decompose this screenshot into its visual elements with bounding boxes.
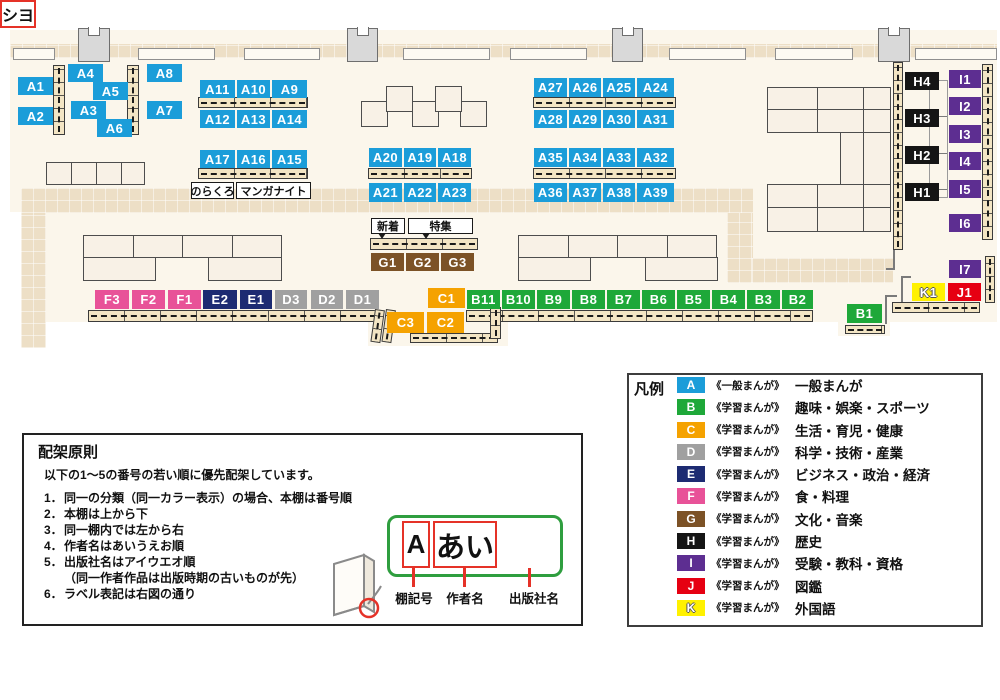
legend-scope: 《学習まんが》 — [711, 444, 795, 459]
legend-title: 凡例 — [634, 378, 664, 399]
wall-segment — [510, 48, 587, 60]
shelf-label-A24: A24 — [637, 78, 674, 97]
reading-table — [83, 257, 156, 281]
legend-badge-H: H — [677, 533, 705, 549]
pillar — [347, 28, 378, 62]
shelf-label-A10: A10 — [237, 80, 270, 98]
legend-item-F: F《学習まんが》食・料理 — [677, 488, 977, 504]
principle-text: 出版社名はアイウエオ順 — [64, 553, 195, 570]
reading-table — [840, 132, 864, 185]
bookshelf — [370, 238, 478, 250]
shelf-label-A36: A36 — [534, 183, 567, 202]
reading-table — [863, 87, 891, 110]
shelf-label-A5: A5 — [93, 82, 128, 100]
shelf-label-G1: G1 — [371, 253, 404, 271]
reading-table — [46, 162, 72, 185]
reading-table — [645, 257, 718, 281]
legend-badge-F: F — [677, 488, 705, 504]
reading-table — [863, 132, 891, 185]
legend-badge-B: B — [677, 399, 705, 415]
shelf-label-C1: C1 — [428, 288, 465, 308]
shelf-label-A28: A28 — [534, 110, 567, 128]
reading-table — [817, 184, 864, 208]
principle-item: 2．本棚は上から下 — [44, 505, 148, 522]
floor-map: A1A2A4A5A3A6A8A7A11A10A9A12A13A14A17A16A… — [0, 0, 1000, 360]
principle-item: 5．出版社名はアイウエオ順 — [44, 553, 195, 570]
bookshelf — [533, 168, 676, 179]
wall-segment — [138, 48, 215, 60]
bookshelf — [985, 256, 995, 303]
shelf-label-A17: A17 — [200, 150, 235, 168]
shelf-label-E2: E2 — [203, 290, 237, 309]
shelf-label-F3: F3 — [95, 290, 129, 309]
pointer-line — [463, 568, 466, 587]
shelf-label-I4: I4 — [949, 152, 981, 170]
legend-item-J: J《学習まんが》図鑑 — [677, 578, 977, 594]
map-callout: のらくろ — [191, 182, 234, 199]
legend-item-G: G《学習まんが》文化・音楽 — [677, 511, 977, 527]
shelf-label-A37: A37 — [569, 183, 601, 202]
shelf-label-B6: B6 — [642, 290, 675, 309]
reading-table — [182, 235, 233, 258]
principle-item: 1．同一の分類（同一カラー表示）の場合、本棚は番号順 — [44, 489, 352, 506]
shelf-unit-frame — [929, 80, 948, 198]
reading-table — [767, 207, 818, 232]
bookshelf — [198, 97, 308, 108]
legend-badge-J: J — [677, 578, 705, 594]
bookshelf — [368, 168, 472, 179]
shelf-label-I7: I7 — [949, 260, 981, 278]
shelf-label-G2: G2 — [406, 253, 439, 271]
legend-item-H: H《学習まんが》歴史 — [677, 533, 977, 549]
bookshelf — [982, 64, 993, 240]
reading-table — [667, 235, 717, 258]
legend-category: 文化・音楽 — [795, 509, 863, 529]
shelf-label-B1: B1 — [847, 304, 882, 323]
wall-line — [885, 295, 897, 297]
principle-text: 同一の分類（同一カラー表示）の場合、本棚は番号順 — [64, 489, 352, 506]
shelf-label-A13: A13 — [237, 110, 270, 128]
pillar — [878, 28, 910, 62]
reading-table — [96, 162, 122, 185]
shelf-label-A26: A26 — [569, 78, 601, 97]
shelf-label-A6: A6 — [97, 119, 132, 137]
wall-line — [886, 268, 895, 270]
shelf-label-I2: I2 — [949, 97, 981, 115]
shelf-label-A1: A1 — [18, 77, 53, 95]
shelf-label-A2: A2 — [18, 107, 53, 125]
map-callout: 特集 — [408, 218, 473, 234]
principle-item: （同一作者作品は出版時期の古いものが先） — [44, 569, 304, 586]
floor-map-page: A1A2A4A5A3A6A8A7A11A10A9A12A13A14A17A16A… — [0, 0, 1000, 700]
wall-segment — [669, 48, 746, 60]
principle-number: 5． — [44, 553, 64, 570]
reading-table — [767, 109, 818, 133]
pillar — [612, 28, 643, 62]
wall-segment — [915, 48, 997, 60]
reading-table — [863, 207, 891, 232]
shelf-label-D2: D2 — [311, 290, 343, 309]
legend-scope: 《学習まんが》 — [711, 511, 795, 526]
shelf-label-A30: A30 — [603, 110, 635, 128]
pointer-line — [528, 568, 531, 587]
shelf-label-A34: A34 — [569, 148, 601, 167]
shelf-label-C2: C2 — [427, 312, 464, 333]
shelf-label-B10: B10 — [502, 290, 535, 309]
legend-badge-G: G — [677, 511, 705, 527]
reading-table — [71, 162, 97, 185]
legend-category: ビジネス・政治・経済 — [795, 464, 930, 484]
shelf-label-A11: A11 — [200, 80, 235, 98]
bookshelf — [893, 62, 903, 250]
reading-table — [817, 207, 864, 232]
shelf-label-B11: B11 — [467, 290, 500, 309]
legend-item-E: E《学習まんが》ビジネス・政治・経済 — [677, 466, 977, 482]
legend-badge-A: A — [677, 377, 705, 393]
bookshelf — [466, 310, 813, 322]
shelf-label-H4: H4 — [905, 72, 939, 90]
legend-badge-I: I — [677, 555, 705, 571]
shelf-label-A12: A12 — [200, 110, 235, 128]
shelf-label-A25: A25 — [603, 78, 635, 97]
reading-table — [133, 235, 183, 258]
shelf-label-K1: K1 — [912, 283, 945, 301]
wall-line — [901, 276, 911, 278]
shelf-label-A32: A32 — [637, 148, 674, 167]
legend-category: 趣味・娯楽・スポーツ — [795, 397, 930, 417]
legend-category: 生活・育児・健康 — [795, 420, 903, 440]
walkway-band — [752, 258, 893, 283]
reading-table — [435, 86, 462, 112]
book-icon — [326, 548, 384, 620]
legend-category: 外国語 — [795, 598, 836, 618]
principle-number: 1． — [44, 489, 64, 506]
bookshelf — [53, 65, 65, 135]
bookshelf — [198, 168, 308, 179]
label-author-box: あい — [433, 521, 497, 568]
shelf-label-A22: A22 — [404, 183, 436, 202]
shelf-label-C3: C3 — [387, 312, 424, 333]
wall-line — [885, 296, 887, 324]
legend-scope: 《学習まんが》 — [711, 534, 795, 549]
reading-table — [232, 235, 282, 258]
legend-badge-K: K — [677, 600, 705, 616]
reading-table — [518, 235, 569, 258]
shelf-label-D1: D1 — [346, 290, 379, 309]
principle-text: （同一作者作品は出版時期の古いものが先） — [64, 569, 304, 586]
reading-table — [863, 109, 891, 133]
legend-category: 図鑑 — [795, 576, 822, 596]
principle-number: 6． — [44, 585, 64, 602]
reading-table — [361, 101, 388, 127]
shelf-label-F2: F2 — [132, 290, 165, 309]
principle-item: 4．作者名はあいうえお順 — [44, 537, 184, 554]
legend-category: 歴史 — [795, 531, 822, 551]
legend-item-D: D《学習まんが》科学・技術・産業 — [677, 444, 977, 460]
legend-item-B: B《学習まんが》趣味・娯楽・スポーツ — [677, 399, 977, 415]
bookshelf — [88, 310, 379, 322]
reading-table — [617, 235, 668, 258]
shelf-label-G3: G3 — [441, 253, 474, 271]
shelf-label-A31: A31 — [637, 110, 674, 128]
principle-item: 3．同一棚内では左から右 — [44, 521, 184, 538]
shelf-label-A23: A23 — [438, 183, 471, 202]
reading-table — [83, 235, 134, 258]
principle-number: 3． — [44, 521, 64, 538]
caption-shelf-code: 棚記号 — [390, 588, 438, 607]
shelf-label-B2: B2 — [782, 290, 813, 309]
reading-table — [568, 235, 618, 258]
legend-item-K: K《学習まんが》外国語 — [677, 600, 977, 616]
shelf-label-A3: A3 — [71, 101, 106, 119]
shelf-label-J1: J1 — [948, 283, 981, 301]
shelf-label-I1: I1 — [949, 70, 981, 88]
shelf-label-E1: E1 — [240, 290, 272, 309]
shelf-label-A16: A16 — [237, 150, 270, 168]
shelf-label-A18: A18 — [438, 148, 471, 167]
map-callout: 新着 — [371, 218, 405, 234]
legend-item-C: C《学習まんが》生活・育児・健康 — [677, 422, 977, 438]
shelf-label-F1: F1 — [168, 290, 201, 309]
legend-item-A: A《一般まんが》一般まんが — [677, 377, 977, 393]
reading-table — [121, 162, 145, 185]
principles-intro: 以下の1～5の番号の若い順に優先配架しています。 — [44, 466, 320, 483]
legend-scope: 《学習まんが》 — [711, 578, 795, 593]
walkway-band — [727, 213, 753, 283]
shelf-label-A38: A38 — [603, 183, 635, 202]
legend-category: 一般まんが — [795, 375, 863, 395]
principle-number — [44, 569, 64, 586]
legend-scope: 《学習まんが》 — [711, 556, 795, 571]
principle-text: 本棚は上から下 — [64, 505, 148, 522]
principle-text: 同一棚内では左から右 — [64, 521, 184, 538]
reading-table — [460, 101, 487, 127]
reading-table — [863, 184, 891, 208]
principles-title: 配架原則 — [38, 441, 98, 462]
legend-scope: 《一般まんが》 — [711, 378, 795, 393]
reading-table — [386, 86, 413, 112]
wall-segment — [403, 48, 490, 60]
shelf-label-A29: A29 — [569, 110, 601, 128]
shelf-label-A20: A20 — [369, 148, 402, 167]
shelf-label-B3: B3 — [747, 290, 780, 309]
page-background-patch — [0, 212, 21, 322]
shelf-label-A9: A9 — [272, 80, 307, 98]
shelf-label-A15: A15 — [272, 150, 307, 168]
pointer-line — [412, 568, 415, 587]
shelf-label-A14: A14 — [272, 110, 307, 128]
shelf-label-A19: A19 — [404, 148, 436, 167]
bookshelf — [490, 307, 501, 339]
legend-scope: 《学習まんが》 — [711, 400, 795, 415]
legend-item-I: I《学習まんが》受験・教科・資格 — [677, 555, 977, 571]
principle-item: 6．ラベル表記は右図の通り — [44, 585, 196, 602]
shelf-label-H3: H3 — [905, 109, 939, 127]
legend-category: 受験・教科・資格 — [795, 553, 903, 573]
shelf-label-B9: B9 — [537, 290, 570, 309]
shelf-label-B4: B4 — [712, 290, 745, 309]
bookshelf — [410, 333, 498, 343]
principle-text: 作者名はあいうえお順 — [64, 537, 184, 554]
wall-segment — [13, 48, 55, 60]
legend-badge-E: E — [677, 466, 705, 482]
label-shelf-code-box: A — [402, 521, 430, 568]
shelf-label-B5: B5 — [677, 290, 710, 309]
reading-table — [767, 87, 818, 110]
legend-badge-C: C — [677, 422, 705, 438]
shelf-label-A21: A21 — [369, 183, 402, 202]
wall-segment — [775, 48, 853, 60]
shelf-label-B8: B8 — [572, 290, 605, 309]
shelf-label-B7: B7 — [607, 290, 640, 309]
shelf-label-H2: H2 — [905, 146, 939, 164]
principle-number: 4． — [44, 537, 64, 554]
bookshelf — [533, 97, 676, 108]
shelf-label-A8: A8 — [147, 64, 182, 82]
map-callout: マンガナイト — [236, 182, 311, 199]
shelf-label-A39: A39 — [637, 183, 674, 202]
shelf-label-A4: A4 — [68, 64, 103, 82]
legend-category: 食・料理 — [795, 486, 849, 506]
bookshelf — [892, 302, 980, 313]
reading-table — [817, 109, 864, 133]
wall-segment — [244, 48, 320, 60]
label-publisher-box: シヨ — [0, 0, 36, 28]
legend-rows: A《一般まんが》一般まんがB《学習まんが》趣味・娯楽・スポーツC《学習まんが》生… — [677, 377, 977, 622]
reading-table — [518, 257, 591, 281]
shelf-label-A35: A35 — [534, 148, 567, 167]
reading-table — [817, 87, 864, 110]
pillar — [78, 28, 110, 62]
reading-table — [208, 257, 282, 281]
shelf-label-A27: A27 — [534, 78, 567, 97]
shelf-label-A7: A7 — [147, 101, 182, 119]
shelf-label-I6: I6 — [949, 214, 981, 232]
legend-scope: 《学習まんが》 — [711, 489, 795, 504]
shelf-label-I3: I3 — [949, 125, 981, 143]
legend-scope: 《学習まんが》 — [711, 600, 795, 615]
shelf-label-H1: H1 — [905, 183, 939, 201]
legend-scope: 《学習まんが》 — [711, 467, 795, 482]
legend-category: 科学・技術・産業 — [795, 442, 903, 462]
legend-scope: 《学習まんが》 — [711, 422, 795, 437]
shelf-label-A33: A33 — [603, 148, 635, 167]
principle-number: 2． — [44, 505, 64, 522]
principle-text: ラベル表記は右図の通り — [64, 585, 196, 602]
legend-badge-D: D — [677, 444, 705, 460]
shelf-label-I5: I5 — [949, 180, 981, 198]
caption-publisher: 出版社名 — [502, 588, 566, 607]
bookshelf — [845, 325, 885, 334]
shelf-label-D3: D3 — [275, 290, 307, 309]
reading-table — [767, 184, 818, 208]
caption-author: 作者名 — [440, 588, 490, 607]
